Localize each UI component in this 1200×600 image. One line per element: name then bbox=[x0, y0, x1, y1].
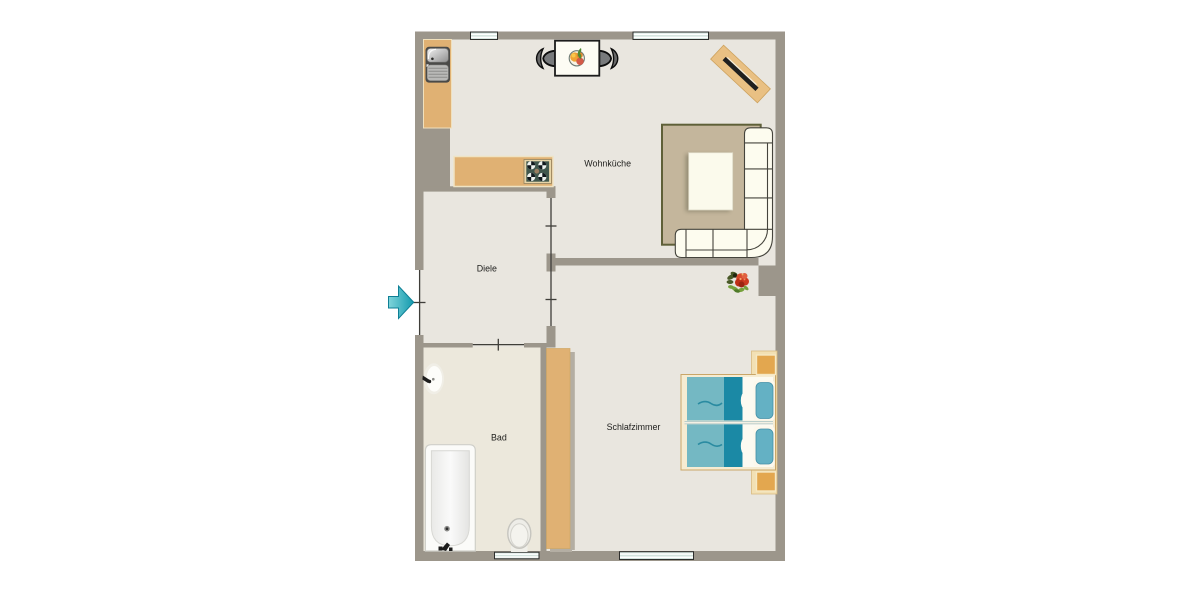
svg-text:Diele: Diele bbox=[477, 264, 497, 274]
svg-text:Wohnküche: Wohnküche bbox=[584, 159, 631, 169]
svg-text:Schlafzimmer: Schlafzimmer bbox=[607, 422, 661, 432]
svg-text:Bad: Bad bbox=[491, 433, 507, 443]
